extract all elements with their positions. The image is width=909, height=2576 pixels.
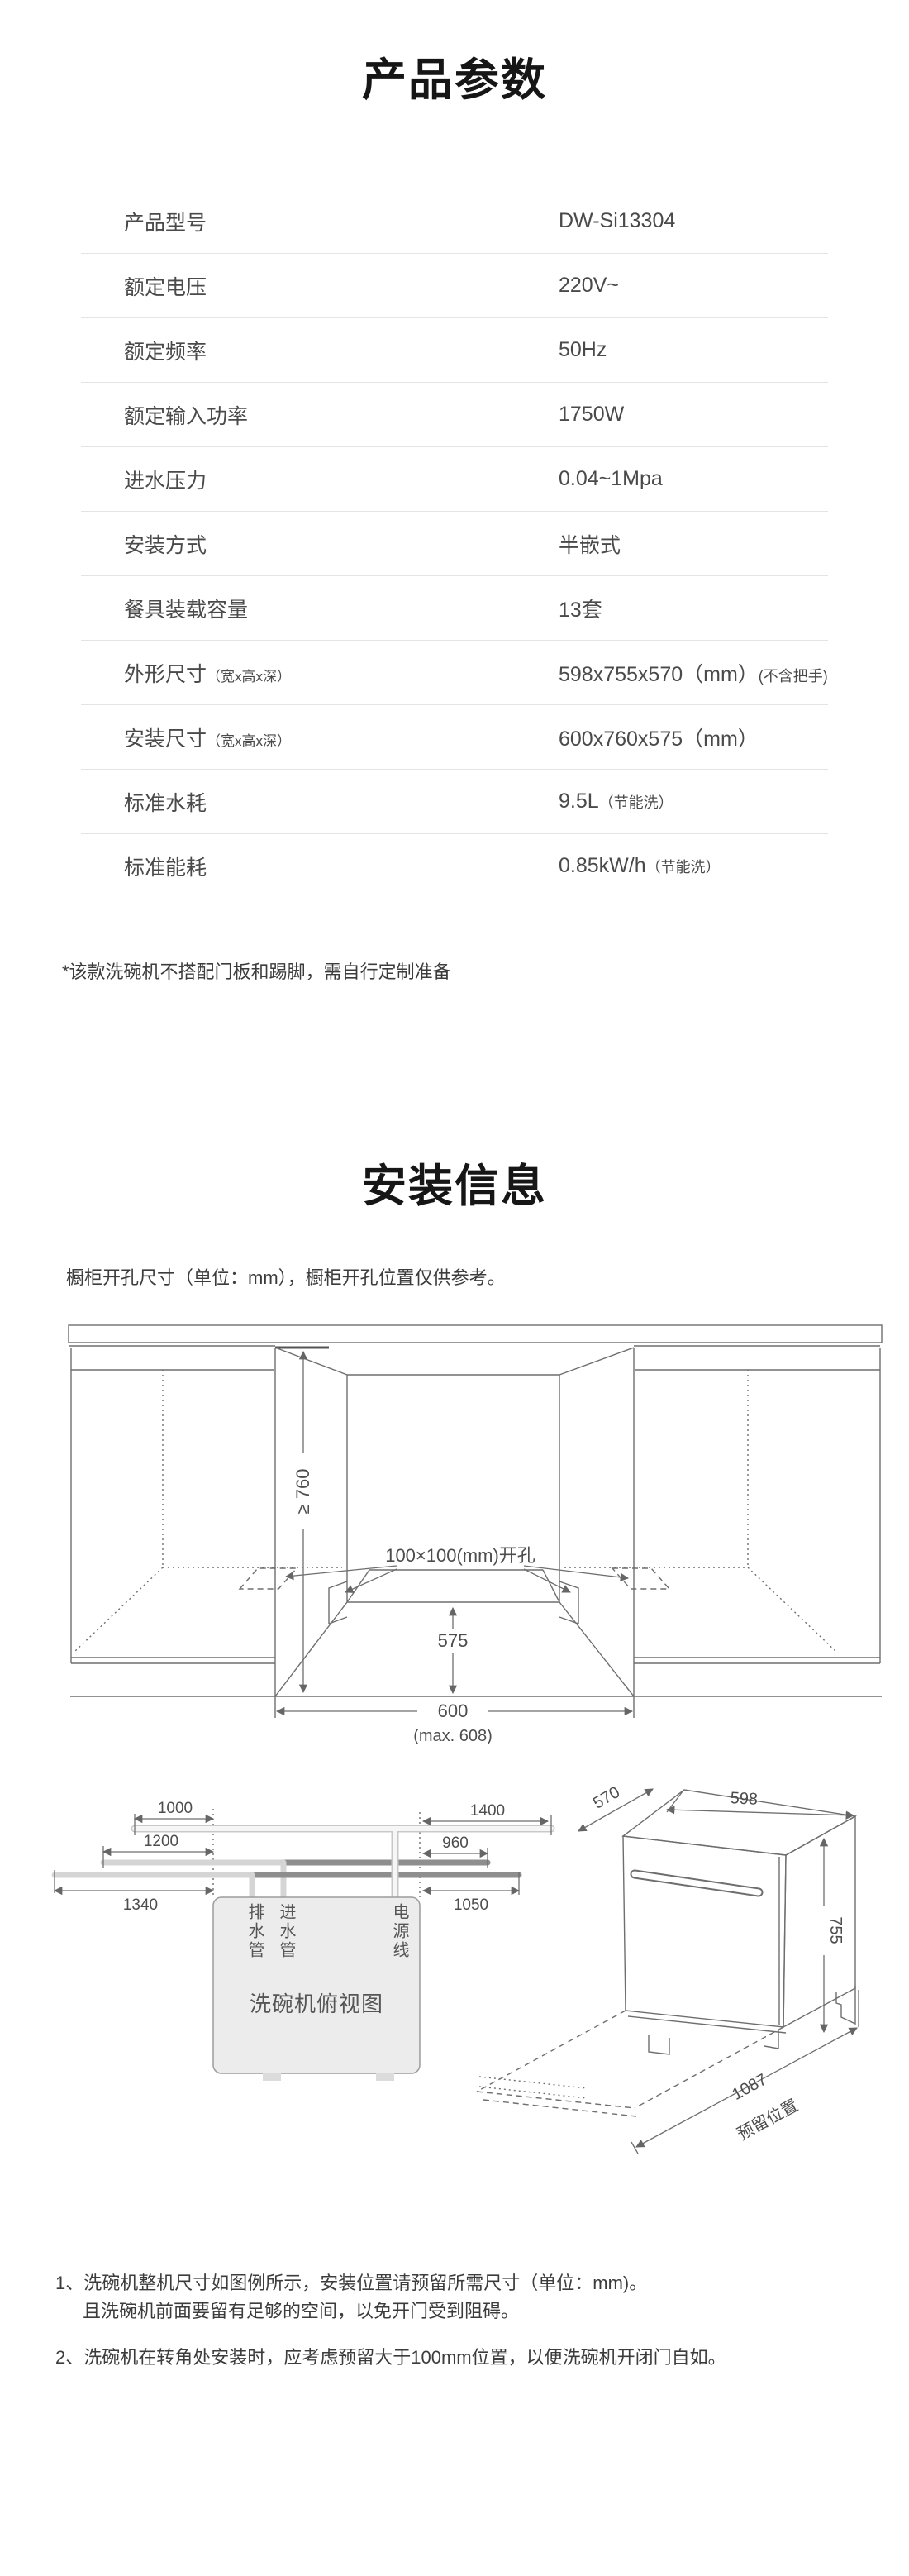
cabinet-opening-diagram: ≥ 760 100×100(mm)开孔 575 600 (max. 608) — [41, 1314, 892, 1786]
dim-depth-570: 570 — [578, 1783, 653, 1831]
dim-left-1200: 1200 — [103, 1833, 213, 1852]
spec-label: 外形尺寸（宽x高x深） — [81, 658, 291, 688]
product-spec-page: 产品参数 产品型号 DW-Si13304 额定电压 220V~ 额定频率 50H… — [0, 0, 909, 2576]
spec-label: 产品型号 — [81, 207, 207, 236]
spec-value: 600x760x575（mm） — [559, 723, 759, 752]
note-line-1: 1、洗碗机整机尺寸如图例所示，安装位置请预留所需尺寸（单位：mm)。 — [55, 2269, 882, 2297]
svg-text:1340: 1340 — [123, 1896, 158, 1914]
door-handle — [635, 1874, 759, 1892]
spec-value: 半嵌式 — [559, 529, 621, 559]
hole-mark-left — [240, 1568, 297, 1589]
dim-left-1340: 1340 — [55, 1891, 213, 1914]
note-line-2: 2、洗碗机在转角处安装时，应考虑预留大于100mm位置，以便洗碗机开闭门自如。 — [55, 2344, 882, 2372]
dim-depth-575: 575 — [438, 1608, 469, 1693]
spec-row-model: 产品型号 DW-Si13304 — [81, 189, 828, 254]
spec-row-install-size: 安装尺寸（宽x高x深） 600x760x575（mm） — [81, 705, 828, 770]
dim-height-760: ≥ 760 — [292, 1352, 315, 1692]
install-title: 安装信息 — [0, 1149, 909, 1214]
install-notes: 1、洗碗机整机尺寸如图例所示，安装位置请预留所需尺寸（单位：mm)。 且洗碗机前… — [55, 2269, 882, 2372]
spec-value: 598x755x570（mm）(不含把手) — [559, 658, 828, 688]
spec-value: DW-Si13304 — [559, 209, 675, 233]
svg-text:600: 600 — [438, 1701, 469, 1721]
countertop — [69, 1325, 882, 1343]
spec-value: 220V~ — [559, 274, 619, 298]
pipe-label-power: 电源线 — [388, 1903, 412, 1960]
spec-label: 安装方式 — [81, 529, 207, 559]
hole-label: 100×100(mm)开孔 — [385, 1545, 535, 1566]
spec-row-power: 额定输入功率 1750W — [81, 383, 828, 447]
spec-row-outer-size: 外形尺寸（宽x高x深） 598x755x570（mm）(不含把手) — [81, 641, 828, 705]
foot-left — [263, 2073, 281, 2081]
spec-value: 13套 — [559, 594, 602, 623]
niche-opening — [275, 1348, 634, 1718]
spec-value: 50Hz — [559, 338, 607, 362]
pipe-label-drain: 排水管 — [243, 1903, 267, 1960]
install-subtitle: 橱柜开孔尺寸（单位：mm），橱柜开孔位置仅供参考。 — [66, 1263, 506, 1290]
spec-footnote: *该款洗碗机不搭配门板和踢脚，需自行定制准备 — [62, 957, 451, 984]
svg-text:598: 598 — [730, 1789, 758, 1809]
spec-value: 0.04~1Mpa — [559, 467, 663, 491]
spec-table: 产品型号 DW-Si13304 额定电压 220V~ 额定频率 50Hz 额定输… — [81, 189, 828, 898]
svg-text:≥ 760: ≥ 760 — [293, 1469, 313, 1515]
spec-row-water-pressure: 进水压力 0.04~1Mpa — [81, 447, 828, 512]
spec-label: 额定频率 — [81, 336, 207, 365]
pipe-label-inlet: 进水管 — [274, 1903, 298, 1960]
spec-value: 0.85kW/h（节能洗） — [559, 854, 721, 878]
page-title: 产品参数 — [0, 43, 909, 108]
spec-row-energy-use: 标准能耗 0.85kW/h（节能洗） — [81, 834, 828, 898]
spec-label: 进水压力 — [81, 465, 207, 494]
dim-left-1000: 1000 — [135, 1800, 213, 1819]
svg-text:1000: 1000 — [158, 1800, 193, 1817]
spec-label: 额定电压 — [81, 271, 207, 301]
machine-dimension-diagram: 570 598 755 1087 预留位置 — [463, 1769, 884, 2166]
svg-text:575: 575 — [438, 1630, 469, 1651]
svg-text:1200: 1200 — [144, 1833, 178, 1850]
spec-label: 标准水耗 — [81, 787, 207, 817]
spec-row-install-type: 安装方式 半嵌式 — [81, 512, 828, 576]
right-cabinet — [564, 1348, 880, 1663]
dim-width-600: 600 (max. 608) — [277, 1701, 632, 1745]
spec-label: 安装尺寸（宽x高x深） — [81, 723, 291, 752]
topview-caption: 洗碗机俯视图 — [213, 1987, 420, 2018]
note-line-1b: 且洗碗机前面要留有足够的空间，以免开门受到阻碍。 — [55, 2297, 882, 2326]
spec-label: 额定输入功率 — [81, 400, 248, 430]
spec-label: 标准能耗 — [81, 852, 207, 881]
spec-row-frequency: 额定频率 50Hz — [81, 318, 828, 383]
svg-text:(max. 608): (max. 608) — [413, 1727, 493, 1745]
hole-mark-right — [612, 1568, 669, 1589]
spec-row-capacity: 餐具装载容量 13套 — [81, 576, 828, 641]
foot-right — [376, 2073, 394, 2081]
spec-row-voltage: 额定电压 220V~ — [81, 254, 828, 318]
spec-row-water-use: 标准水耗 9.5L（节能洗） — [81, 770, 828, 834]
svg-text:预留位置: 预留位置 — [734, 2096, 801, 2144]
spec-label: 餐具装载容量 — [81, 594, 248, 623]
drain-pipe — [55, 1875, 519, 1896]
svg-text:1087: 1087 — [729, 2070, 770, 2104]
spec-value: 9.5L（节能洗） — [559, 789, 673, 813]
svg-text:755: 755 — [826, 1916, 845, 1944]
spec-value: 1750W — [559, 403, 624, 427]
